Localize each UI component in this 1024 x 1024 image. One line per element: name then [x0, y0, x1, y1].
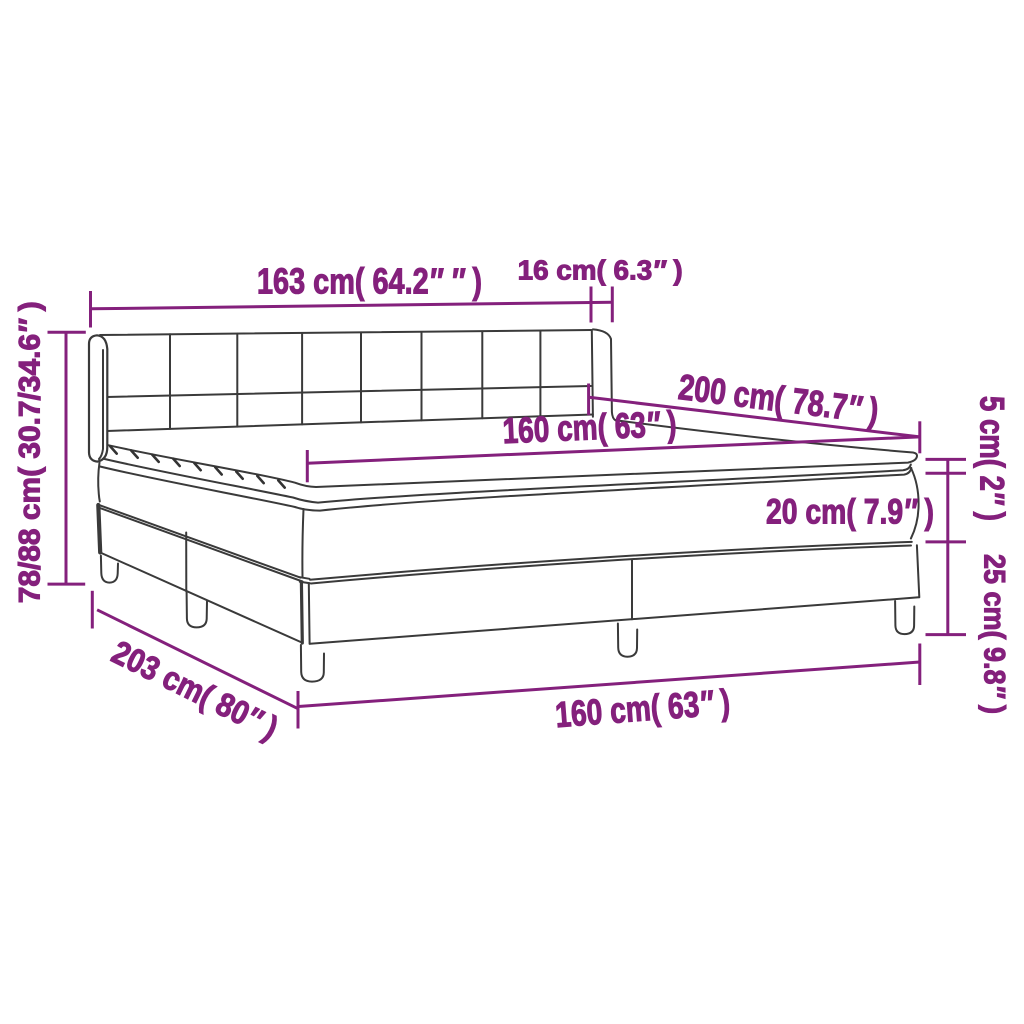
svg-text:25 cm( 9.8″ ): 25 cm( 9.8″ ) — [978, 554, 1011, 714]
svg-text:16 cm( 6.3″ ): 16 cm( 6.3″ ) — [518, 255, 683, 286]
svg-text:5 cm( 2″ ): 5 cm( 2″ ) — [973, 396, 1011, 521]
svg-text:78/88 cm( 30.7/34.6″ ): 78/88 cm( 30.7/34.6″ ) — [13, 301, 46, 603]
svg-text:163 cm( 64.2″ ″ ): 163 cm( 64.2″ ″ ) — [257, 261, 482, 302]
svg-text:160 cm( 63″ ): 160 cm( 63″ ) — [502, 403, 678, 452]
svg-text:20 cm( 7.9″ ): 20 cm( 7.9″ ) — [766, 493, 934, 532]
